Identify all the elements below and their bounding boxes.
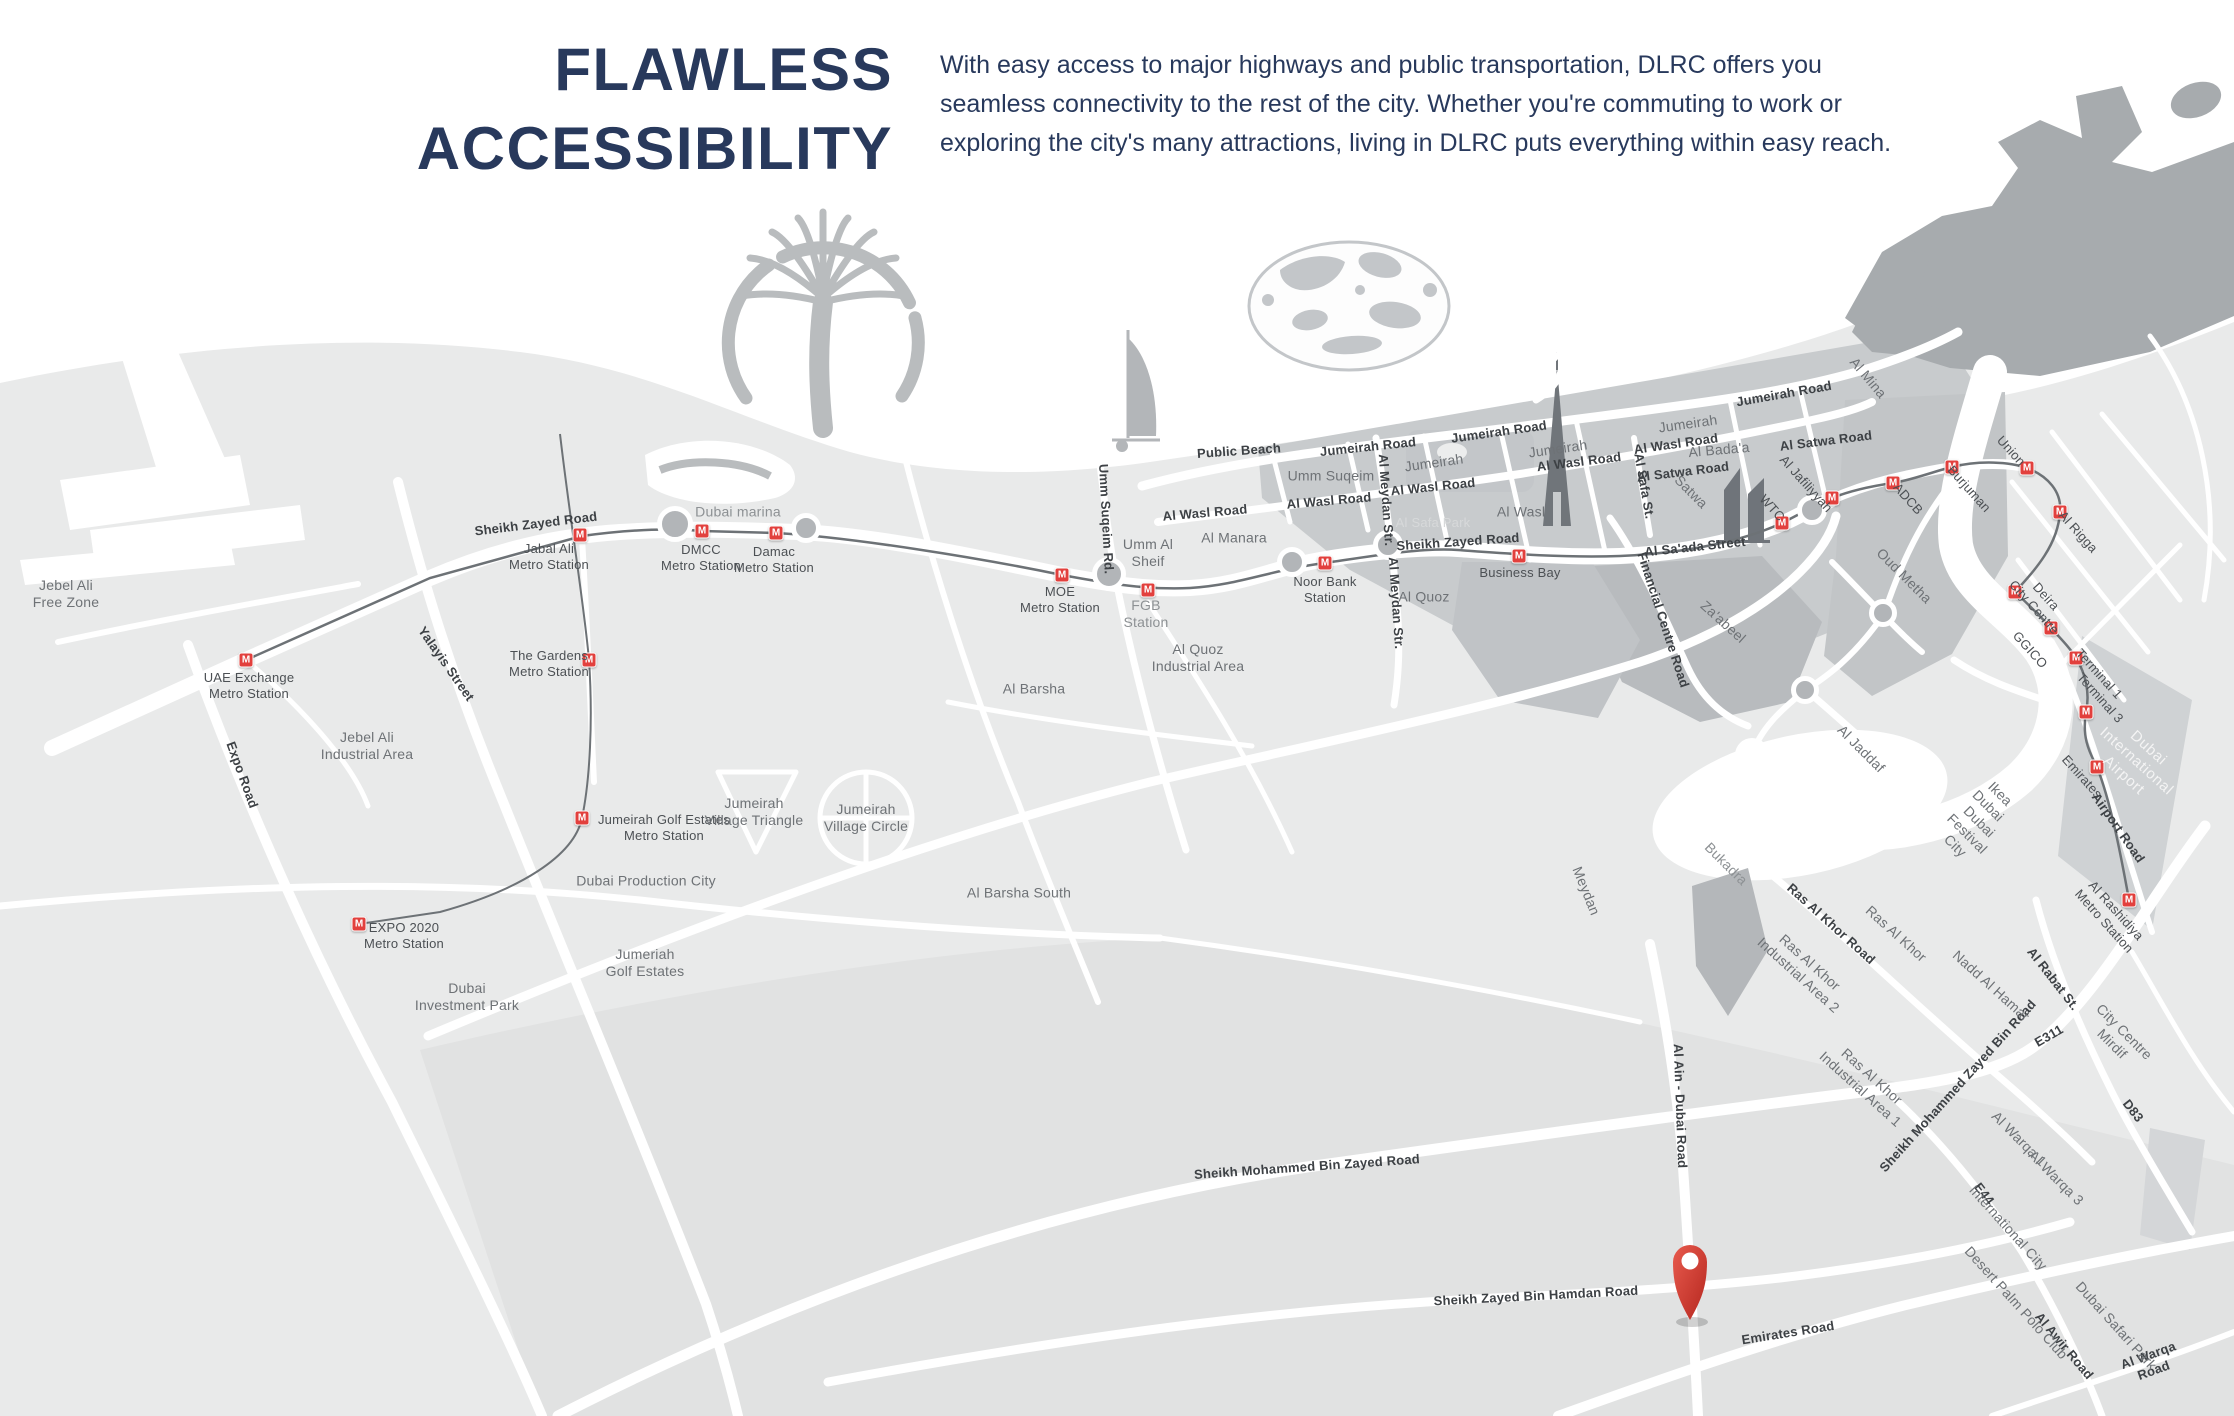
metro-station-marker: M xyxy=(575,811,590,826)
dubai-accessibility-map: MMMMMMMMMMMMMMMMMMMMMMM UAE Exchange Met… xyxy=(0,0,2234,1416)
metro-station-marker: M xyxy=(1318,556,1333,571)
metro-station-marker: M xyxy=(2008,585,2023,600)
roundabout xyxy=(1092,557,1126,591)
metro-station-marker: M xyxy=(2069,651,2084,666)
roundabout xyxy=(1797,495,1827,525)
metro-station-marker: M xyxy=(1775,516,1790,531)
island xyxy=(2166,75,2226,125)
roundabout xyxy=(791,513,821,543)
palm-jumeirah-icon xyxy=(728,212,918,428)
map-canvas xyxy=(0,0,2234,1416)
metro-station-marker: M xyxy=(1825,491,1840,506)
safa-pond xyxy=(1437,443,1467,461)
metro-station-marker: M xyxy=(573,528,588,543)
metro-station-marker: M xyxy=(2090,760,2105,775)
world-islands-icon xyxy=(1249,242,1449,370)
metro-station-marker: M xyxy=(769,526,784,541)
metro-station-marker: M xyxy=(352,917,367,932)
roundabout xyxy=(1277,547,1307,577)
roundabout xyxy=(657,506,693,542)
metro-station-marker: M xyxy=(582,653,597,668)
roundabout xyxy=(1869,599,1897,627)
accessibility-section: FLAWLESS ACCESSIBILITY With easy access … xyxy=(0,0,2234,1416)
metro-station-marker: M xyxy=(2122,893,2137,908)
burj-al-arab-icon xyxy=(1112,330,1160,452)
metro-station-marker: M xyxy=(695,524,710,539)
metro-station-marker: M xyxy=(1886,476,1901,491)
metro-station-marker: M xyxy=(2020,461,2035,476)
metro-station-marker: M xyxy=(1512,549,1527,564)
metro-station-marker: M xyxy=(239,653,254,668)
metro-station-marker: M xyxy=(2079,705,2094,720)
metro-station-marker: M xyxy=(1945,460,1960,475)
roundabout xyxy=(1791,676,1819,704)
metro-station-marker: M xyxy=(1141,583,1156,598)
metro-station-marker: M xyxy=(2053,505,2068,520)
metro-station-marker: M xyxy=(2044,621,2059,636)
roundabout xyxy=(1373,530,1403,560)
metro-station-marker: M xyxy=(1055,568,1070,583)
